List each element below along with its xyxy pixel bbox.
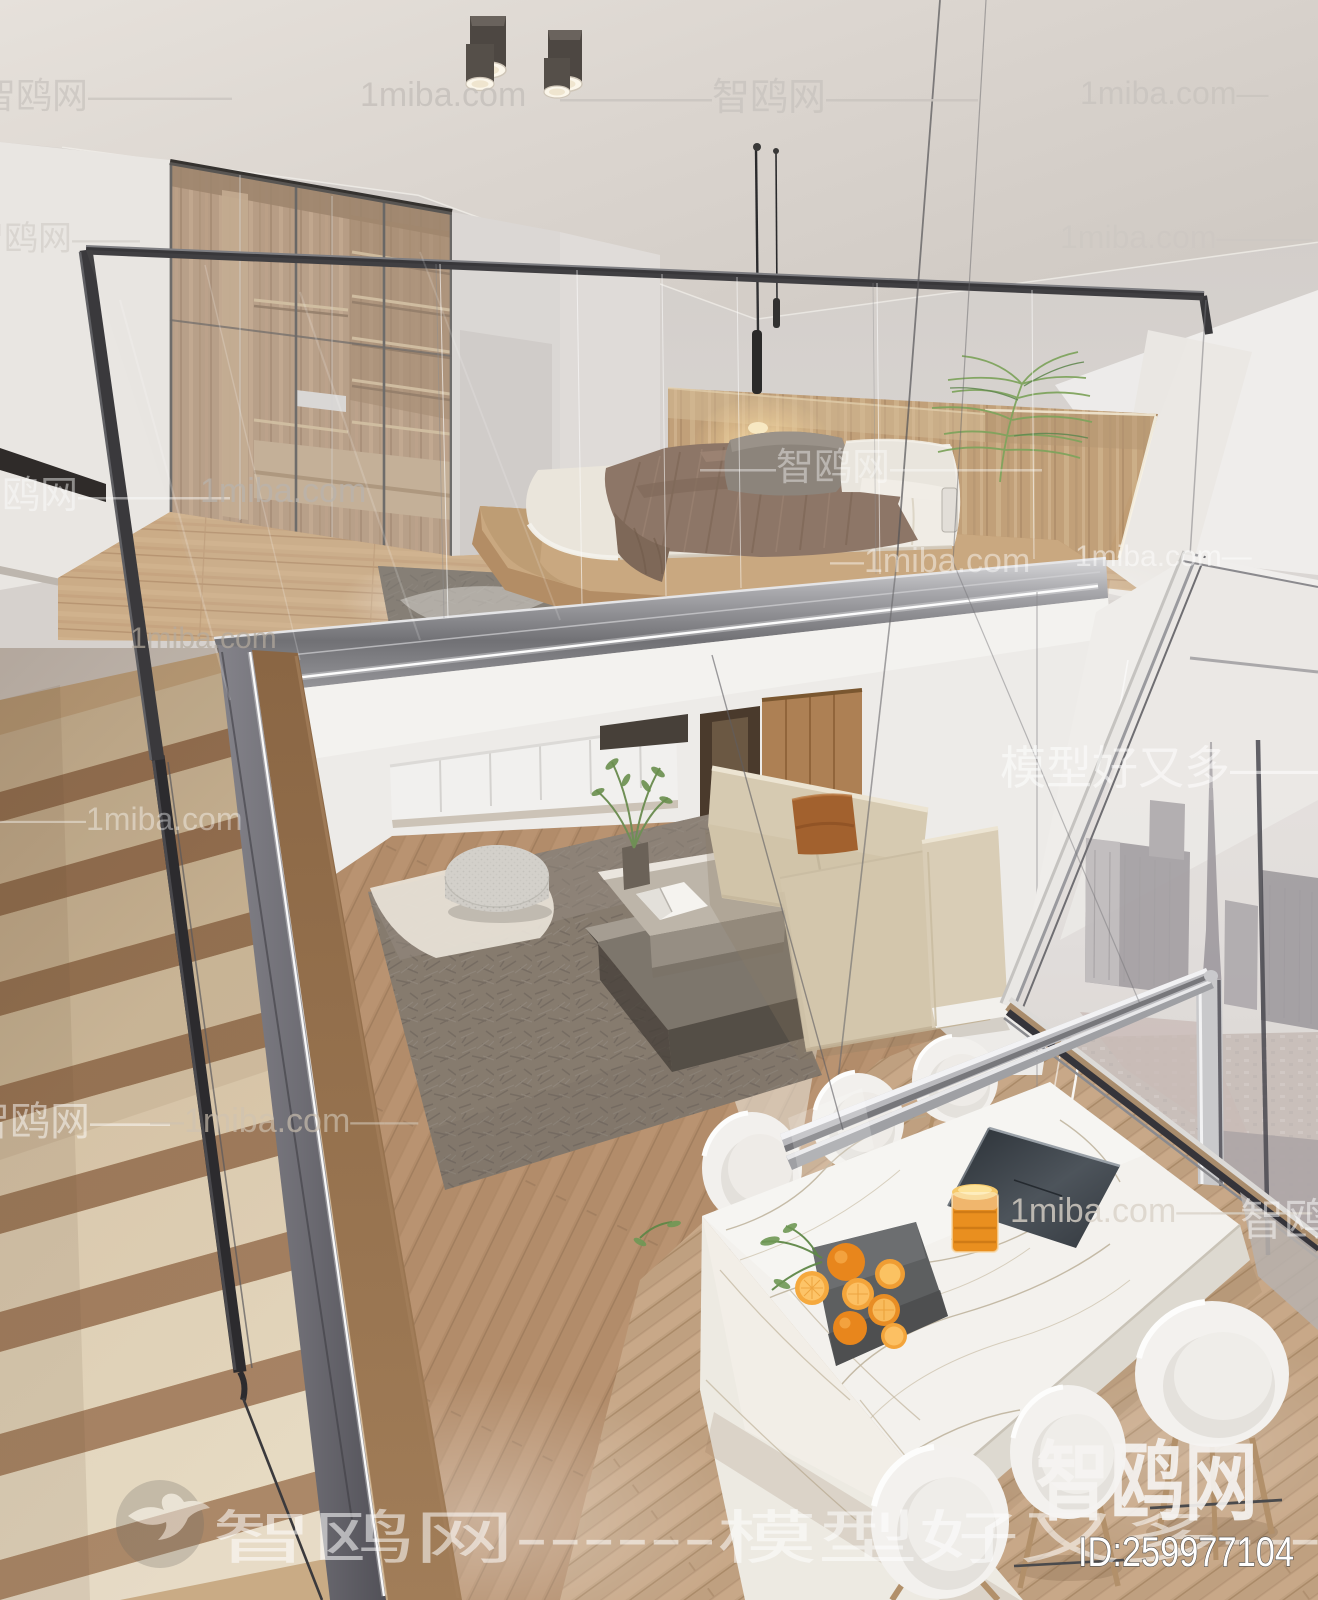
svg-text:1miba.com: 1miba.com: [360, 76, 526, 114]
svg-text:智鸥网: 智鸥网: [1036, 1435, 1258, 1531]
svg-text:1miba.com—: 1miba.com—: [1075, 540, 1252, 573]
svg-text:智鸥网——: 智鸥网——: [0, 220, 140, 258]
svg-text:智鸥: 智鸥: [1240, 1196, 1318, 1245]
svg-text:模型好又多——: 模型好又多——: [1000, 742, 1318, 794]
svg-text:智鸥网——: 智鸥网——: [0, 1100, 170, 1144]
svg-text:1miba.com———: 1miba.com———: [1060, 219, 1313, 255]
svg-text:—1miba.com——: —1miba.com——: [150, 1102, 418, 1140]
svg-text:智鸥网————: 智鸥网————: [0, 475, 230, 517]
svg-text:1miba.com—: 1miba.com—: [1080, 75, 1269, 111]
svg-text:1miba.com: 1miba.com: [130, 622, 277, 655]
svg-text:ID:259977104: ID:259977104: [1078, 1528, 1294, 1575]
svg-text:——智鸥网————: ——智鸥网————: [700, 447, 1042, 489]
svg-text:————智鸥网————: ————智鸥网————: [560, 77, 978, 119]
svg-text:—1miba.com: —1miba.com: [830, 542, 1030, 580]
svg-text:———1miba.com: ———1miba.com: [0, 801, 243, 837]
svg-text:智鸥网————: 智鸥网————: [0, 75, 232, 116]
svg-text:1miba.com: 1miba.com: [200, 472, 366, 510]
